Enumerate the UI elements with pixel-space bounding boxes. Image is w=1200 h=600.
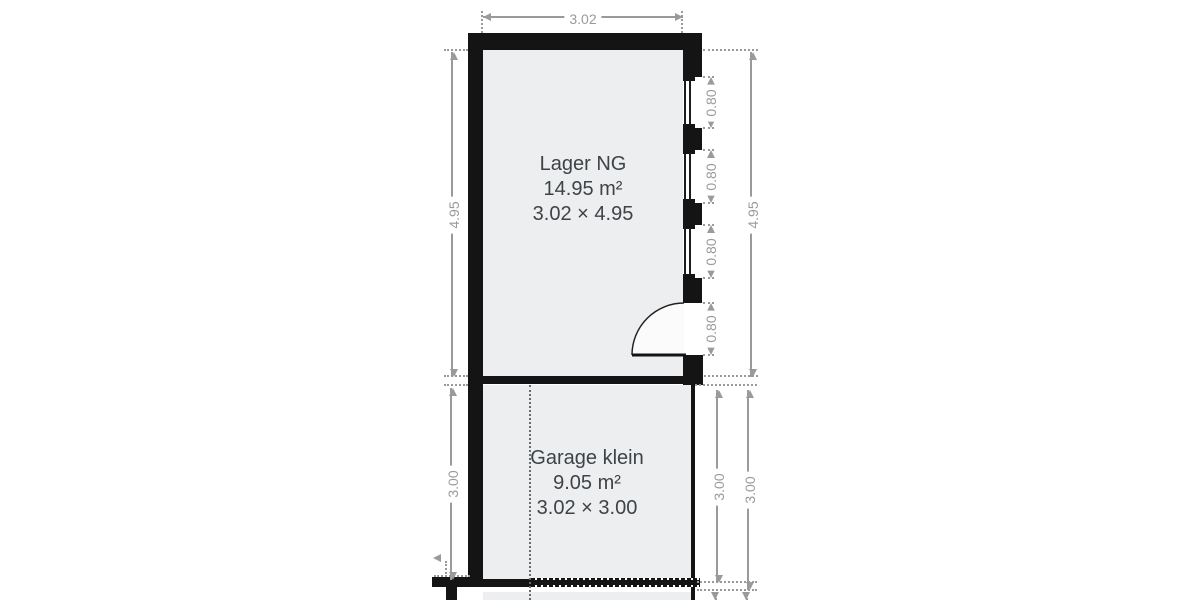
room-area: 9.05 m² bbox=[483, 471, 691, 496]
window-icon bbox=[683, 225, 702, 278]
wall-left bbox=[468, 33, 483, 586]
window-icon bbox=[683, 77, 702, 128]
extension-line bbox=[695, 384, 757, 386]
wall-top bbox=[468, 33, 702, 50]
room-below-floor bbox=[483, 592, 691, 600]
extension-line bbox=[481, 11, 483, 33]
dim-height-right-upper: 4.95 bbox=[750, 52, 752, 377]
dim-label: 3.00 bbox=[711, 468, 727, 505]
extension-line bbox=[703, 277, 714, 279]
dim-label: 3.02 bbox=[564, 11, 601, 27]
extension-line bbox=[703, 354, 714, 356]
wall-bottom-left-horizontal bbox=[432, 577, 483, 587]
floorplan: Lager NG 14.95 m² 3.02 × 4.95 Garage kle… bbox=[0, 0, 1200, 600]
room-name: Garage klein bbox=[483, 446, 691, 471]
extension-line bbox=[704, 375, 758, 377]
extension-line bbox=[434, 575, 470, 577]
dim-label: 4.95 bbox=[745, 196, 761, 233]
extension-line bbox=[444, 384, 468, 386]
dim-label: 3.00 bbox=[742, 471, 758, 508]
dim-width-top: 3.02 bbox=[483, 16, 683, 18]
room-label-lager: Lager NG 14.95 m² 3.02 × 4.95 bbox=[483, 152, 683, 227]
wall-interior bbox=[468, 376, 691, 384]
room-label-garage: Garage klein 9.05 m² 3.02 × 3.00 bbox=[483, 446, 691, 521]
wall-right-segment bbox=[683, 128, 702, 150]
extension-line bbox=[697, 589, 757, 591]
dim-height-right-lower-inner: 3.00 bbox=[716, 390, 718, 583]
extension-line bbox=[444, 375, 468, 377]
garage-door bbox=[531, 578, 700, 587]
extension-line bbox=[703, 224, 714, 226]
dim-stub-bottom-left bbox=[433, 554, 441, 562]
extension-line bbox=[703, 149, 714, 151]
dim-label: 0.80 bbox=[703, 158, 719, 195]
dim-stub-bottom-right bbox=[742, 592, 750, 600]
room-size: 3.02 × 3.00 bbox=[483, 496, 691, 521]
dim-height-right-lower-outer: 3.00 bbox=[747, 390, 749, 590]
extension-line bbox=[703, 127, 714, 129]
extension-line bbox=[703, 202, 714, 204]
room-name: Lager NG bbox=[483, 152, 683, 177]
door-swing-icon bbox=[628, 299, 688, 359]
extension-line bbox=[681, 11, 683, 33]
dim-label: 0.80 bbox=[703, 310, 719, 347]
extension-line bbox=[444, 49, 468, 51]
dim-label: 3.00 bbox=[445, 465, 461, 502]
wall-right-segment bbox=[683, 203, 702, 225]
dim-height-left-upper: 4.95 bbox=[451, 52, 453, 377]
room-size: 3.02 × 4.95 bbox=[483, 202, 683, 227]
dim-label: 0.80 bbox=[703, 233, 719, 270]
extension-line bbox=[445, 561, 447, 577]
extension-line bbox=[697, 581, 757, 583]
wall-garage-right bbox=[691, 385, 695, 600]
dim-height-left-lower: 3.00 bbox=[450, 388, 452, 580]
extension-line bbox=[703, 76, 714, 78]
wall-right-segment bbox=[683, 33, 702, 77]
window-icon bbox=[683, 150, 702, 203]
dim-stub-bottom-right bbox=[711, 592, 719, 600]
extension-line bbox=[703, 302, 714, 304]
room-area: 14.95 m² bbox=[483, 177, 683, 202]
extension-line bbox=[703, 49, 758, 51]
wall-bottom-left-vertical bbox=[446, 587, 457, 600]
dim-label: 4.95 bbox=[446, 196, 462, 233]
dim-label: 0.80 bbox=[703, 84, 719, 121]
wall-garage-bottom-solid bbox=[483, 579, 531, 587]
